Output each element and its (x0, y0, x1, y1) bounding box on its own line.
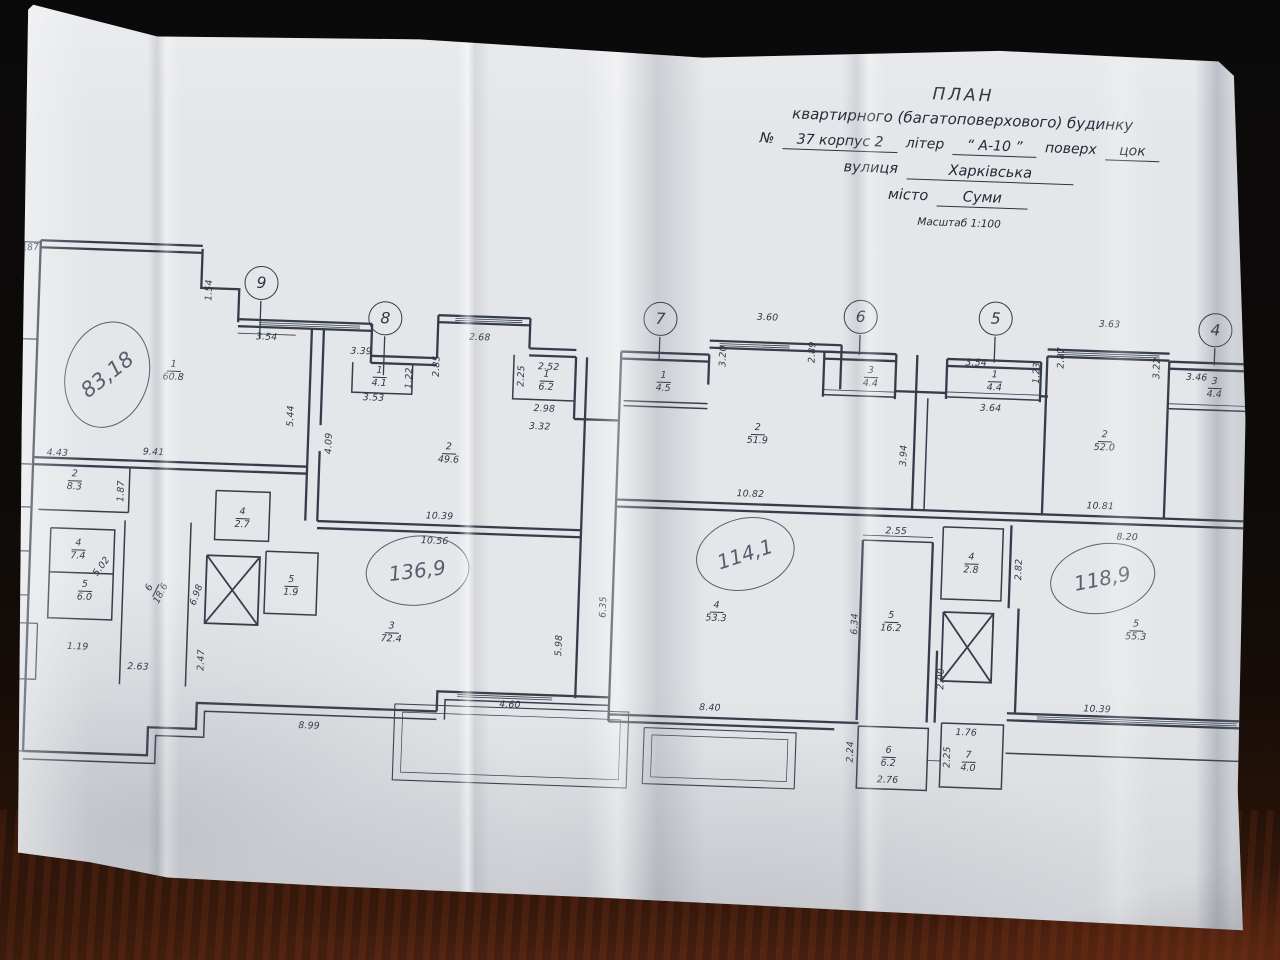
dimension-label: 4.43 (47, 447, 69, 459)
dimension-label: 10.39 (1083, 703, 1111, 715)
dimension-label: 2.85 (431, 355, 443, 377)
room-label: 51.9 (283, 569, 299, 598)
room-area: 16.2 (880, 624, 901, 634)
dimension-label: 2.68 (469, 332, 491, 344)
dimension-label: 10.39 (425, 510, 453, 522)
room-area: 72.4 (380, 634, 401, 644)
dimension-label: 3.94 (898, 445, 910, 467)
dimension-label: 3.60 (757, 312, 779, 324)
liter-label: літер (906, 135, 945, 152)
dimension-label: 2.52 (538, 361, 560, 373)
room-area: 4.4 (1206, 390, 1221, 400)
room-label: 516.2 (880, 605, 902, 634)
room-area: 1.9 (283, 588, 298, 598)
no-label: № (759, 130, 774, 146)
room-number: 2 (442, 442, 456, 454)
folded-paper-sheet: ПЛАН квартирного (багатоповерхового) буд… (0, 0, 1280, 960)
room-area: 6.0 (77, 592, 92, 602)
room-label: 14.5 (655, 365, 671, 394)
room-label: 160.8 (162, 353, 184, 382)
floor-value: цок (1105, 142, 1160, 162)
street-value: Харківська (906, 161, 1074, 185)
room-area: 4.1 (371, 379, 386, 389)
room-area: 53.3 (705, 613, 726, 623)
dimension-label: 4.09 (323, 432, 335, 454)
room-label: 372.4 (380, 615, 402, 644)
dimension-label: 3.87 (17, 242, 39, 254)
dimension-label: 1.87 (115, 480, 127, 502)
dimension-label: 3.20 (717, 345, 729, 367)
room-area: 7.4 (70, 551, 85, 561)
room-label: 249.6 (438, 436, 460, 465)
dimension-label: 8.40 (699, 702, 721, 714)
room-area: 4.4 (987, 383, 1002, 393)
room-label: 66.2 (880, 740, 896, 769)
city-label: місто (888, 187, 929, 204)
dimension-label: 1.54 (203, 279, 215, 301)
room-number: 1 (987, 370, 1001, 382)
dimension-label: 2.63 (127, 661, 149, 673)
room-number: 7 (961, 750, 975, 762)
dimension-label: 10.82 (736, 488, 764, 500)
dimension-label: 2.00 (935, 668, 947, 690)
dimension-label: 3.54 (965, 357, 987, 369)
dimension-label: 2.87 (1056, 347, 1068, 369)
room-label: 453.3 (705, 594, 727, 623)
dimension-label: 2.25 (942, 746, 954, 768)
room-label: 252.0 (1094, 424, 1116, 453)
city-value: Суми (936, 188, 1028, 209)
room-number: 2 (750, 423, 764, 435)
dimension-label: 3.22 (1151, 357, 1163, 379)
dimension-label: 8.99 (298, 720, 320, 732)
room-area: 2.7 (234, 520, 249, 530)
dimension-label: 1.23 (1031, 362, 1043, 384)
dimension-label: 3.39 (350, 346, 372, 358)
dimension-label: 1.22 (403, 367, 415, 389)
dimension-label: 2.47 (195, 649, 207, 671)
handwritten-area-value: 114,1 (714, 534, 776, 575)
room-number: 1 (656, 371, 670, 383)
room-label: 42.8 (963, 546, 979, 575)
dimension-label: 2.82 (1013, 559, 1025, 581)
room-number: 5 (78, 579, 92, 591)
room-label: 34.4 (1206, 371, 1222, 400)
dimension-label: 3.53 (363, 392, 385, 404)
room-area: 2.8 (963, 565, 978, 575)
room-label: 14.1 (371, 360, 387, 389)
dimension-label: 2.98 (533, 403, 555, 415)
photo-of-floor-plan: ПЛАН квартирного (багатоповерхового) буд… (0, 0, 1280, 960)
dimension-label: 8.20 (1116, 531, 1138, 543)
handwritten-area-value: 118,9 (1072, 561, 1133, 595)
room-number: 2 (1097, 430, 1111, 442)
room-number: 5 (284, 575, 298, 587)
dimension-label: 3.64 (980, 403, 1002, 415)
handwritten-area-value: 136,9 (388, 555, 448, 586)
room-label: 555.3 (1125, 613, 1147, 642)
dimension-label: 4.60 (499, 699, 521, 711)
room-label: 42.7 (234, 501, 250, 530)
dimension-label: 3.54 (256, 331, 278, 343)
room-number: 1 (372, 366, 386, 378)
room-label: 47.4 (70, 532, 86, 561)
room-area: 51.9 (747, 436, 768, 446)
room-area: 6.2 (538, 382, 553, 392)
liter-value: “ А-10 ” (952, 137, 1036, 158)
room-area: 4.5 (655, 384, 670, 394)
room-area: 55.3 (1125, 632, 1146, 642)
room-label: 14.4 (987, 364, 1003, 393)
room-area: 6.2 (880, 759, 895, 769)
room-area: 60.8 (162, 372, 183, 382)
room-area: 4.0 (960, 763, 975, 773)
room-number: 5 (884, 611, 898, 623)
room-number: 5 (1129, 619, 1143, 631)
room-number: 4 (71, 538, 85, 550)
dimension-label: 5.44 (285, 405, 297, 427)
room-number: 2 (67, 469, 81, 481)
plan-layer: ПЛАН квартирного (багатоповерхового) буд… (0, 28, 1280, 812)
room-number: 4 (235, 507, 249, 519)
room-area: 49.6 (438, 455, 459, 465)
room-number: 3 (864, 366, 878, 378)
dimension-label: 1.76 (955, 727, 977, 739)
dimension-label: 1.26 (1261, 376, 1273, 398)
handwritten-area-value: 83,18 (76, 347, 138, 403)
floor-label: поверх (1045, 140, 1097, 158)
dimension-label: 10.81 (1086, 500, 1114, 512)
dimension-label: 9.41 (143, 446, 165, 458)
dimension-label: 6.34 (849, 613, 861, 635)
dimension-label: 3.46 (1186, 372, 1208, 384)
dimension-label: 2.55 (885, 525, 907, 537)
room-number: 3 (384, 621, 398, 633)
room-number: 4 (964, 552, 978, 564)
room-number: 3 (1207, 377, 1221, 389)
dimension-label: 2.25 (516, 365, 528, 387)
dimension-label: 6.36 (1241, 627, 1253, 649)
room-number: 4 (709, 601, 723, 613)
room-label: 251.9 (747, 417, 769, 446)
room-number: 6 (881, 746, 895, 758)
room-label: 74.0 (960, 744, 976, 773)
title-block: ПЛАН квартирного (багатоповерхового) буд… (714, 77, 1209, 238)
room-area: 4.4 (863, 379, 878, 389)
dimension-label: 2.89 (807, 341, 819, 363)
street-label: вулиця (843, 159, 898, 177)
dimension-label: 2.76 (877, 774, 899, 786)
building-number-value: 37 корпус 2 (782, 131, 897, 153)
room-label: 28.3 (67, 463, 83, 492)
room-label: 34.4 (863, 360, 879, 389)
dimension-label: 1.19 (67, 641, 89, 653)
dimension-label: 5.98 (553, 635, 565, 657)
dimension-label: 3.32 (529, 421, 551, 433)
dimension-label: 2.24 (845, 741, 857, 763)
room-area: 8.3 (67, 482, 82, 492)
room-number: 1 (166, 359, 180, 371)
dimension-label: 3.63 (1099, 319, 1121, 331)
dimension-label: 3.63 (1258, 459, 1270, 481)
room-area: 52.0 (1094, 443, 1115, 453)
room-label: 56.0 (77, 573, 93, 602)
dimension-label: 6.35 (598, 596, 610, 618)
